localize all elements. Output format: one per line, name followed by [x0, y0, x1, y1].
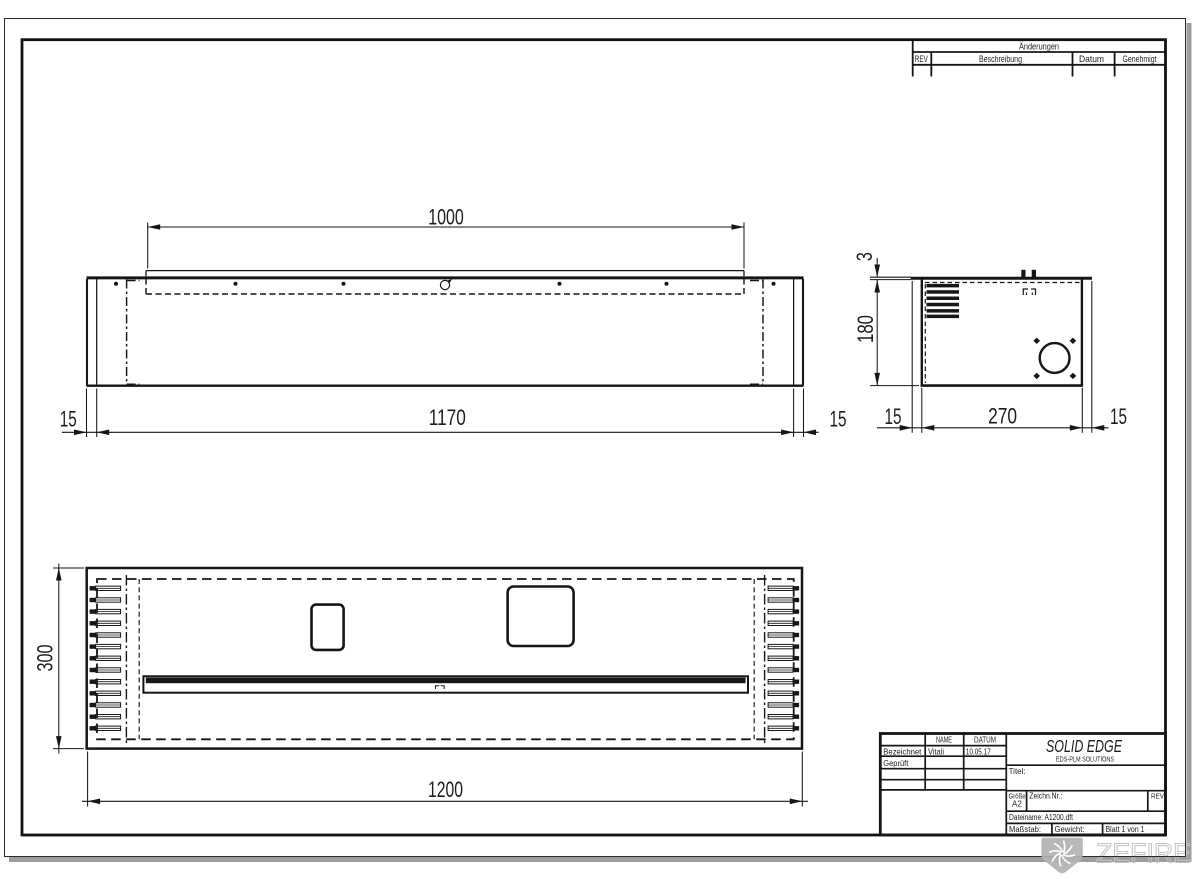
svg-text:SOLID EDGE: SOLID EDGE: [1046, 736, 1122, 756]
svg-text:EDS-PLM SOLUTIONS: EDS-PLM SOLUTIONS: [1056, 754, 1114, 763]
svg-text:REV: REV: [1151, 791, 1164, 800]
svg-text:10.05.17: 10.05.17: [966, 746, 991, 756]
svg-text:1000: 1000: [428, 204, 464, 229]
svg-text:ZEFIRE: ZEFIRE: [1096, 838, 1191, 869]
svg-text:Maßstab:: Maßstab:: [1009, 825, 1041, 834]
svg-text:DATUM: DATUM: [974, 735, 996, 745]
svg-text:15: 15: [830, 406, 847, 431]
svg-text:3: 3: [852, 252, 877, 261]
svg-text:15: 15: [885, 404, 902, 429]
svg-text:270: 270: [988, 404, 1017, 429]
svg-text:A2: A2: [1012, 799, 1022, 808]
svg-text:Titel:: Titel:: [1009, 767, 1026, 776]
svg-text:Gewicht:: Gewicht:: [1055, 825, 1085, 834]
svg-text:15: 15: [1110, 404, 1127, 429]
svg-text:15: 15: [60, 406, 77, 431]
svg-text:Vitali: Vitali: [928, 746, 944, 756]
svg-text:Blatt 1 von 1: Blatt 1 von 1: [1106, 825, 1145, 834]
svg-text:REV: REV: [915, 54, 928, 64]
svg-text:Zeichn.Nr.:: Zeichn.Nr.:: [1029, 792, 1062, 801]
svg-text:Datum: Datum: [1079, 54, 1104, 64]
svg-text:NAME: NAME: [936, 735, 952, 745]
svg-text:300: 300: [33, 645, 58, 672]
svg-text:1200: 1200: [428, 777, 463, 802]
svg-text:Beschreibung: Beschreibung: [979, 54, 1022, 64]
svg-text:Änderungen: Änderungen: [1019, 42, 1059, 52]
svg-text:1170: 1170: [429, 405, 466, 430]
svg-text:Bezeichnet: Bezeichnet: [883, 746, 922, 756]
svg-text:Geprüft: Geprüft: [883, 758, 909, 768]
svg-text:Genehmigt: Genehmigt: [1123, 54, 1157, 64]
svg-text:Dateiname: A1200.dft: Dateiname: A1200.dft: [1009, 813, 1074, 822]
svg-text:180: 180: [853, 315, 878, 343]
